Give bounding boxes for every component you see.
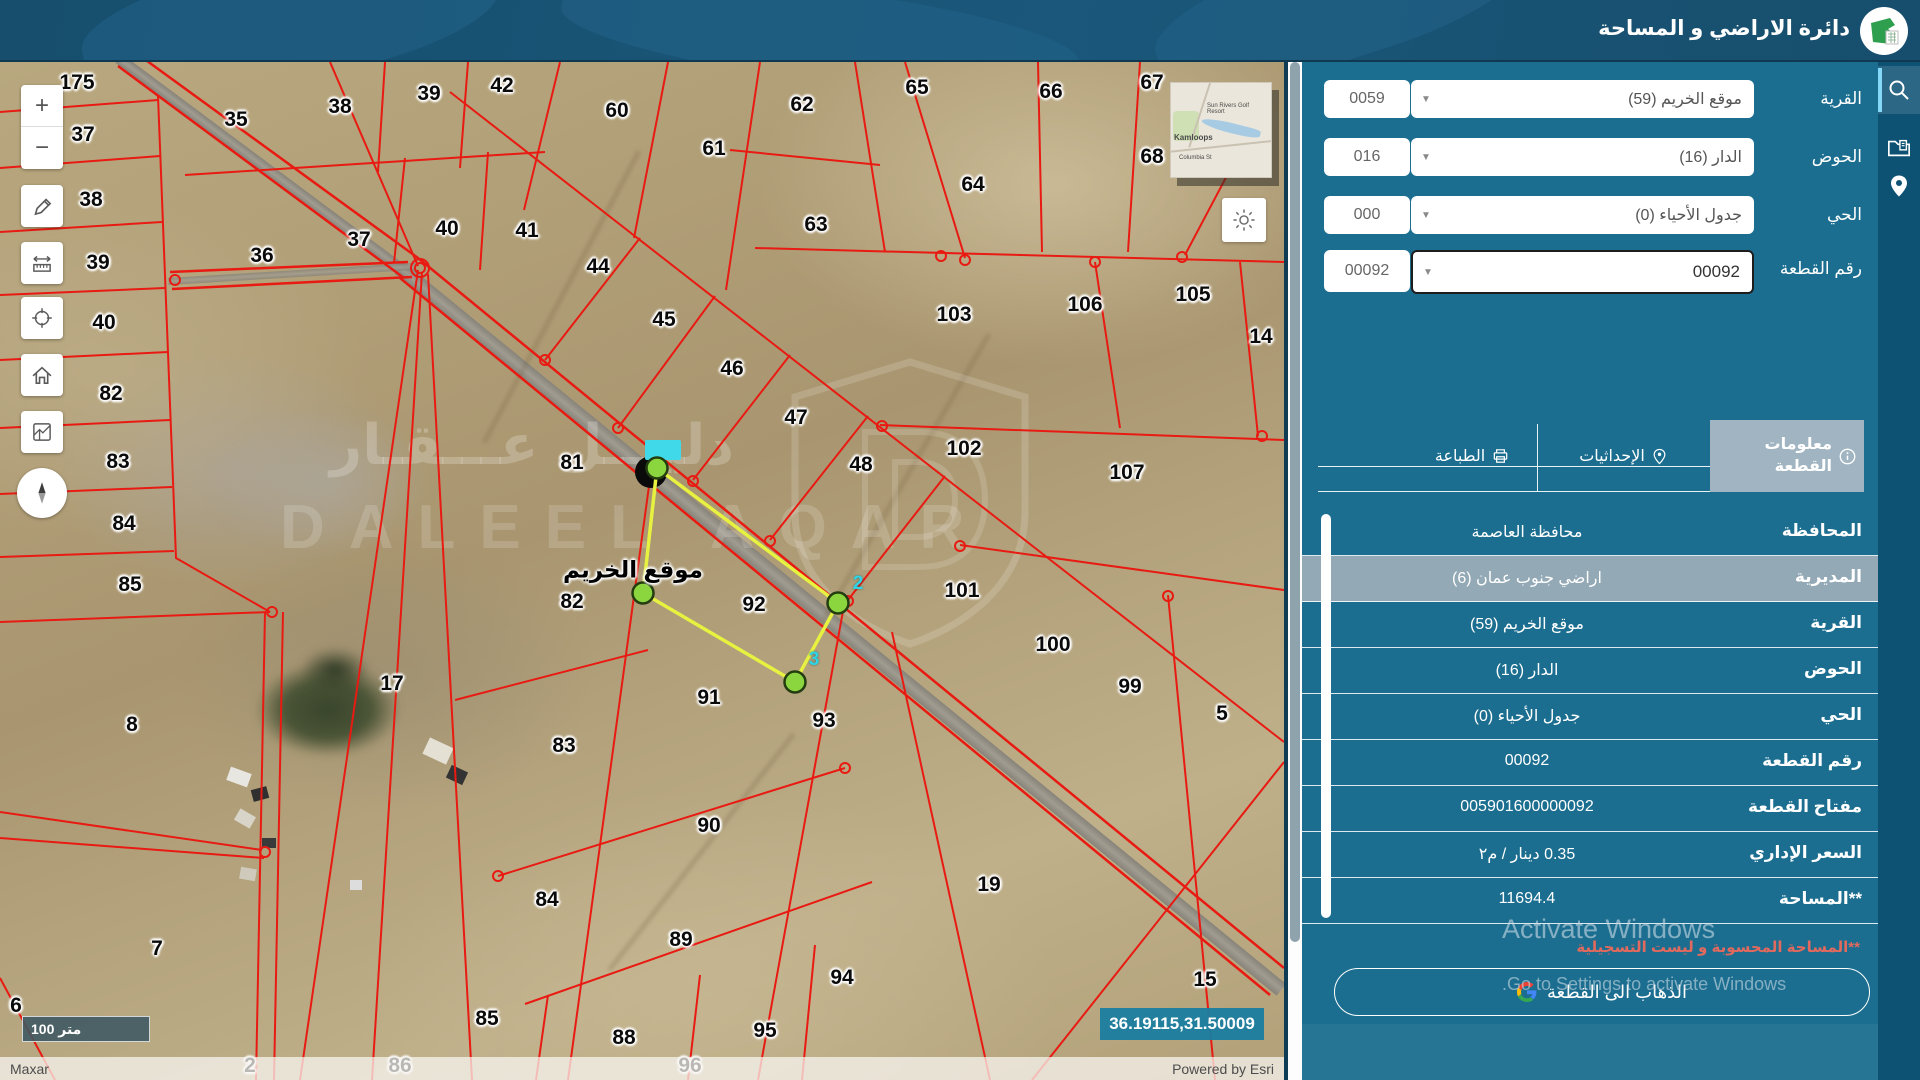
parcel-number: 95	[753, 1019, 776, 1043]
basin-field-label: الحوض	[1812, 146, 1862, 167]
table-row[interactable]: القرية موقع الخريم (59)	[1302, 602, 1878, 648]
district-field-label: الحي	[1827, 204, 1862, 225]
row-value: موقع الخريم (59)	[1362, 614, 1692, 634]
parcel-number: 82	[560, 590, 583, 614]
row-value: محافظة العاصمة	[1362, 522, 1692, 542]
village-select[interactable]: موقع الخريم (59) ▼	[1411, 80, 1754, 118]
village-field-label: القرية	[1820, 88, 1862, 109]
row-label: الحي	[1820, 705, 1862, 725]
attribution-esri: Powered by Esri	[1172, 1061, 1274, 1077]
table-scrollbar[interactable]	[1321, 514, 1331, 918]
parcel-number: 40	[92, 311, 115, 335]
parcel-number: 83	[106, 450, 129, 474]
parcel-number: 85	[118, 573, 141, 597]
parcel-number: 94	[830, 966, 853, 990]
row-label: **المساحة	[1779, 889, 1862, 909]
dls-logo-icon	[1860, 7, 1908, 55]
pencil-icon	[29, 193, 55, 219]
folder-document-icon	[1887, 137, 1911, 159]
parcel-number: 68	[1140, 145, 1163, 169]
parcel-number: 82	[99, 382, 122, 406]
parcel-number: 37	[71, 123, 94, 147]
parcel-number: 35	[224, 108, 247, 132]
parcel-number: 107	[1109, 461, 1144, 485]
pin-icon	[1652, 448, 1667, 465]
chevron-down-icon: ▼	[1421, 210, 1431, 221]
inset-label: Sun Rivers Golf Resort	[1207, 103, 1261, 115]
area-disclaimer-note: **المساحة المحسوبة و ليست التسجيلية	[1576, 938, 1860, 956]
chevron-down-icon: ▼	[1421, 94, 1431, 105]
crosshair-icon	[29, 305, 55, 331]
parcel-number: 103	[936, 303, 971, 327]
table-row[interactable]: **المساحة 11694.4	[1302, 878, 1878, 924]
row-label: القرية	[1810, 613, 1862, 633]
search-icon	[1887, 78, 1911, 102]
tab-parcel-info[interactable]: معلومات القطعة	[1710, 420, 1864, 492]
chevron-down-icon: ▼	[1423, 267, 1433, 278]
village-name-label: موقع الخريم	[563, 557, 703, 584]
table-row[interactable]: رقم القطعة 00092	[1302, 740, 1878, 786]
google-logo-icon	[1517, 982, 1537, 1002]
parcel-number: 7	[151, 937, 163, 961]
tab-coordinates[interactable]: الإحداثيات	[1538, 420, 1708, 492]
vertex-flag-marker	[645, 440, 681, 460]
tabs-divider	[1318, 491, 1710, 492]
parcel-number: 105	[1175, 283, 1210, 307]
parcel-number: 85	[475, 1007, 498, 1031]
table-row[interactable]: المحافظة محافظة العاصمة	[1302, 510, 1878, 556]
parcel-number: 83	[552, 734, 575, 758]
panel-tabs: معلومات القطعة الإحداثيات الطباعة	[1302, 420, 1878, 492]
village-code-box[interactable]: 0059	[1324, 80, 1410, 118]
parcel-number: 88	[612, 1026, 635, 1050]
parcel-search-panel: القرية موقع الخريم (59) ▼ 0059 الحوض الد…	[1302, 62, 1878, 1080]
parcel-number: 38	[79, 188, 102, 212]
parcel-number: 5	[1216, 702, 1228, 726]
sidebar-scrollbar[interactable]	[1288, 62, 1302, 1080]
parcel-number: 46	[720, 357, 743, 381]
parcel-number: 101	[944, 579, 979, 603]
parcel-number: 62	[790, 93, 813, 117]
zoom-out-button[interactable]: −	[21, 127, 63, 169]
header-decoration	[72, 0, 508, 62]
location-pin-icon	[1888, 174, 1910, 198]
parcel-number: 15	[1193, 968, 1216, 992]
panel-footer-band	[1302, 1024, 1878, 1080]
parcel-number: 66	[1039, 80, 1062, 104]
tabs-divider	[1318, 466, 1710, 467]
parcel-code-box[interactable]: 00092	[1324, 250, 1410, 292]
parcel-number: 19	[977, 873, 1000, 897]
row-label: المحافظة	[1782, 521, 1862, 541]
go-to-parcel-button[interactable]: الذهاب الى القطعة	[1334, 968, 1870, 1016]
parcel-number: 65	[905, 76, 928, 100]
table-row[interactable]: السعر الإداري 0.35 دينار / م٢	[1302, 832, 1878, 878]
parcel-number: 8	[126, 713, 138, 737]
ruler-icon	[29, 250, 55, 276]
parcel-number: 44	[586, 255, 609, 279]
parcel-number-field-label: رقم القطعة	[1780, 258, 1862, 279]
tab-print[interactable]: الطباعة	[1406, 420, 1538, 492]
parcel-number: 91	[697, 686, 720, 710]
brightness-button[interactable]	[1222, 198, 1266, 242]
district-select[interactable]: جدول الأحياء (0) ▼	[1411, 196, 1754, 234]
parcel-number: 106	[1067, 293, 1102, 317]
basemap-button[interactable]	[21, 411, 63, 453]
row-value: جدول الأحياء (0)	[1362, 706, 1692, 726]
table-row[interactable]: المديرية اراضي جنوب عمان (6)	[1302, 556, 1878, 602]
parcel-number: 90	[697, 814, 720, 838]
table-row[interactable]: الحوض الدار (16)	[1302, 648, 1878, 694]
parcel-number: 6	[10, 994, 22, 1018]
parcel-number: 38	[328, 95, 351, 119]
tabs-separator	[1537, 424, 1538, 492]
measure-button[interactable]	[21, 242, 63, 284]
attribution-maxar: Maxar	[10, 1061, 49, 1077]
parcel-number: 63	[804, 213, 827, 237]
inset-label: Columbia St	[1179, 155, 1212, 161]
home-button[interactable]	[21, 354, 63, 396]
row-value: اراضي جنوب عمان (6)	[1362, 568, 1692, 588]
search-tool-button[interactable]	[1878, 66, 1920, 114]
parcel-number: 92	[742, 593, 765, 617]
scale-bar: 100 متر	[22, 1016, 150, 1042]
parcel-number: 40	[435, 217, 458, 241]
row-value: 11694.4	[1362, 890, 1692, 908]
parcel-number: 42	[490, 74, 513, 98]
tool-strip	[1878, 62, 1920, 1080]
coordinates-readout: 36.19115,31.50009	[1100, 1008, 1264, 1040]
row-value: 0.35 دينار / م٢	[1362, 844, 1692, 864]
parcel-number: 39	[86, 251, 109, 275]
parcel-number: 41	[515, 219, 538, 243]
location-tool-button[interactable]	[1878, 162, 1920, 210]
district-code-box[interactable]: 000	[1324, 196, 1410, 234]
parcel-number: 17	[380, 672, 403, 696]
inset-label: Kamloops	[1174, 133, 1213, 142]
app-title: دائرة الاراضي و المساحة	[1598, 16, 1850, 41]
row-label: السعر الإداري	[1749, 843, 1862, 863]
vertex-number-label: 3	[809, 649, 820, 671]
zoom-controls: + −	[21, 85, 63, 169]
parcel-number: 14	[1249, 325, 1272, 349]
parcel-number: 45	[652, 308, 675, 332]
parcel-info-table: المحافظة محافظة العاصمة المديرية اراضي ج…	[1302, 510, 1878, 924]
row-label: مفتاح القطعة	[1748, 797, 1862, 817]
parcel-number: 175	[59, 71, 94, 95]
parcel-number: 89	[669, 928, 692, 952]
row-value: 005901600000092	[1362, 798, 1692, 816]
sun-icon	[1231, 207, 1257, 233]
parcel-number: 102	[946, 437, 981, 461]
parcel-number: 60	[605, 99, 628, 123]
overview-inset-map[interactable]: Sun Rivers Golf Resort Kamloops Columbia…	[1170, 82, 1272, 178]
row-value: الدار (16)	[1362, 660, 1692, 680]
parcel-number: 39	[417, 82, 440, 106]
app-window: دائرة الاراضي و المساحة دل	[0, 0, 1920, 1080]
row-label: رقم القطعة	[1762, 751, 1862, 771]
row-label: المديرية	[1795, 567, 1862, 587]
parcel-number: 48	[849, 453, 872, 477]
parcel-number: 100	[1035, 633, 1070, 657]
compass-needle-icon	[27, 476, 57, 510]
chevron-down-icon: ▼	[1421, 152, 1431, 163]
home-icon	[29, 362, 55, 388]
attribution-bar: Maxar Powered by Esri	[0, 1057, 1284, 1080]
header-decoration	[556, 0, 1083, 62]
printer-icon	[1492, 448, 1509, 464]
info-icon	[1839, 448, 1856, 465]
parcel-number: 64	[961, 173, 984, 197]
scrollbar-thumb[interactable]	[1290, 62, 1300, 942]
parcel-number: 81	[560, 451, 583, 475]
basin-select[interactable]: الدار (16) ▼	[1411, 138, 1754, 176]
parcel-number-input[interactable]: 00092 ▼	[1411, 250, 1754, 294]
parcel-number: 36	[250, 244, 273, 268]
header-decoration	[1142, 0, 1537, 62]
parcel-number: 47	[784, 406, 807, 430]
parcel-number: 84	[535, 888, 558, 912]
locate-button[interactable]	[21, 297, 63, 339]
parcel-number: 99	[1118, 675, 1141, 699]
map-canvas[interactable]: دليـــل عـــقـار DALEEL AQAR	[0, 62, 1284, 1080]
zoom-in-button[interactable]: +	[21, 85, 63, 127]
draw-button[interactable]	[21, 185, 63, 227]
parcel-number: 93	[812, 709, 835, 733]
parcel-number: 67	[1140, 71, 1163, 95]
header: دائرة الاراضي و المساحة	[0, 0, 1920, 62]
row-value: 00092	[1362, 752, 1692, 770]
compass-button[interactable]	[17, 468, 67, 518]
basemap-icon	[29, 419, 55, 445]
row-label: الحوض	[1804, 659, 1862, 679]
basin-code-box[interactable]: 016	[1324, 138, 1410, 176]
vertex-number-label: 2	[853, 573, 864, 595]
parcel-number: 61	[702, 137, 725, 161]
table-row[interactable]: الحي جدول الأحياء (0)	[1302, 694, 1878, 740]
table-row[interactable]: مفتاح القطعة 005901600000092	[1302, 786, 1878, 832]
parcel-number: 37	[347, 228, 370, 252]
parcel-number: 84	[112, 512, 135, 536]
